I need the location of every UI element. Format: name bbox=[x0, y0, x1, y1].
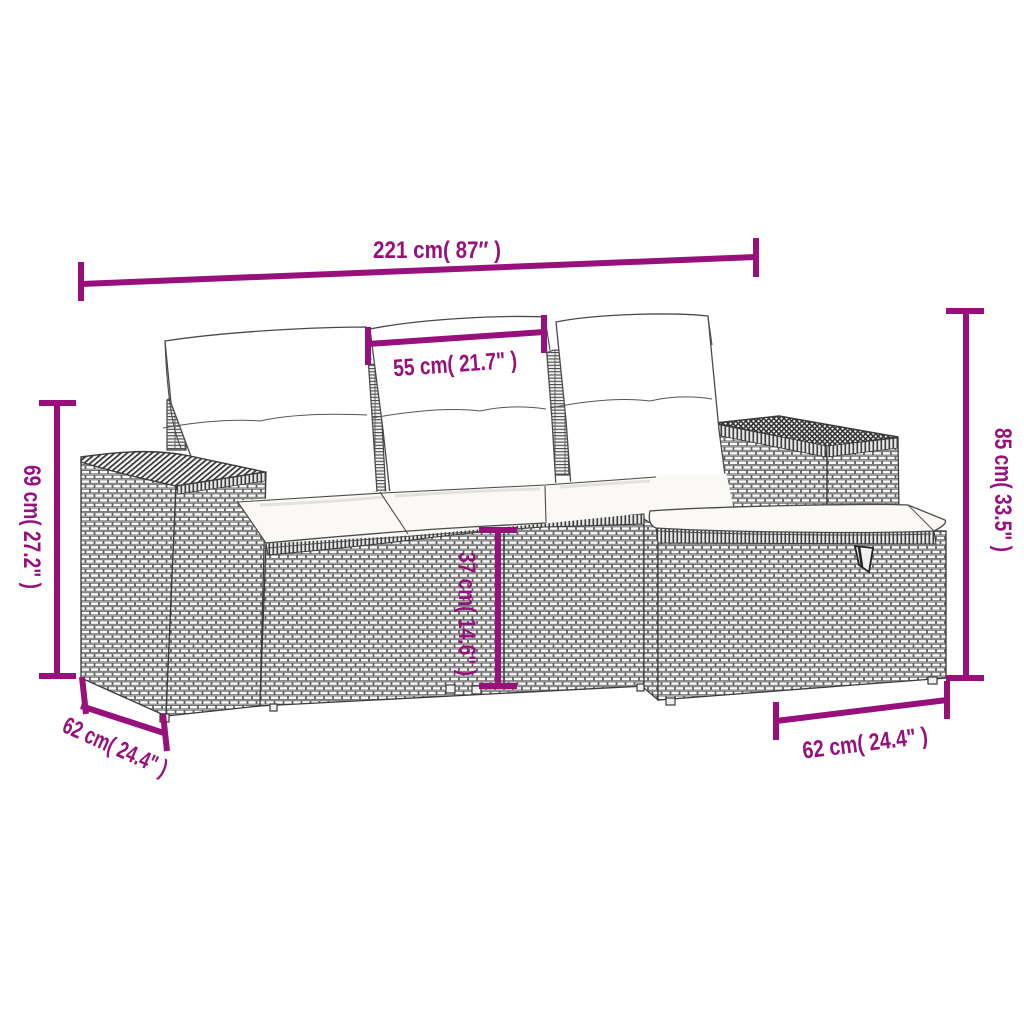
svg-text:85 cm( 33.5" ): 85 cm( 33.5" ) bbox=[989, 428, 1016, 552]
svg-text:69 cm( 27.2" ): 69 cm( 27.2" ) bbox=[18, 465, 45, 589]
svg-text:37 cm( 14.6" ): 37 cm( 14.6" ) bbox=[453, 552, 480, 676]
svg-text:221 cm( 87″ ): 221 cm( 87″ ) bbox=[373, 237, 501, 264]
